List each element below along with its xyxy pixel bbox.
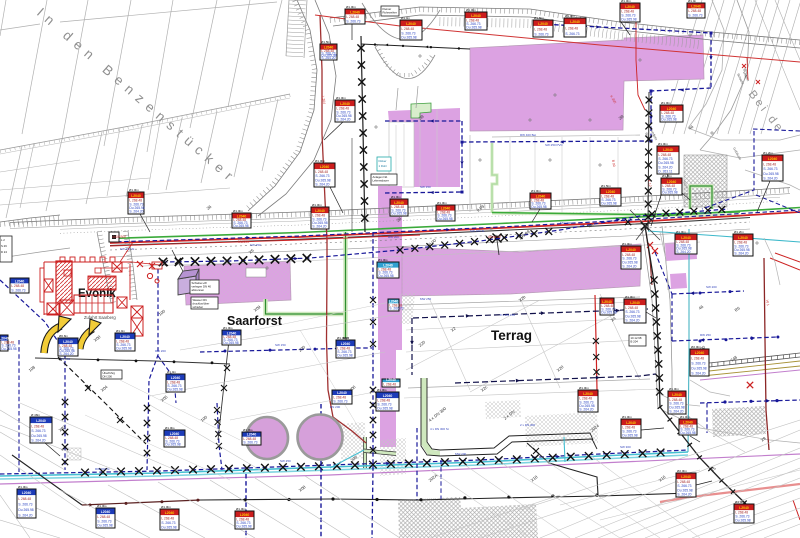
svg-text:S. 264.20: S. 264.20 [315,183,329,187]
svg-text:MW 250: MW 250 [420,297,432,301]
svg-text:Abzw 42: Abzw 42 [488,235,501,239]
svg-text:L2040: L2040 [538,22,548,26]
svg-text:Ø 48m: Ø 48m [31,413,41,417]
svg-text:S. 266.73: S. 266.73 [763,167,777,171]
svg-text:L 2: L 2 [1,238,5,242]
svg-text:SW 150: SW 150 [275,343,286,347]
svg-text:S. 264.20: S. 264.20 [59,352,73,356]
svg-text:Du 265.98: Du 265.98 [621,18,636,22]
svg-text:L2040: L2040 [341,342,351,346]
svg-text:SW 250 St: SW 250 St [120,247,135,251]
svg-text:Ø1.0bn: Ø1.0bn [466,8,476,12]
svg-text:Du 265.98: Du 265.98 [167,388,182,392]
svg-text:L2040: L2040 [663,148,673,152]
svg-text:Du 265.98: Du 265.98 [601,311,616,315]
svg-text:Du 265.98: Du 265.98 [337,354,352,358]
svg-text:Du 265.98: Du 265.98 [223,341,238,345]
svg-text:Ø1.0m: Ø1.0m [167,370,177,374]
svg-text:B 204: B 204 [631,340,639,344]
svg-text:Ø1.0m: Ø1.0m [401,16,411,20]
svg-text:L2040: L2040 [626,248,636,252]
svg-text:Du 265.98: Du 265.98 [763,172,778,176]
svg-text:L2040: L2040 [337,391,347,395]
svg-text:L2040: L2040 [406,22,416,26]
svg-text:Lebensdauer: Lebensdauer [373,179,389,183]
svg-text:SW 250: SW 250 [700,211,711,215]
svg-text:L2040: L2040 [320,165,330,169]
svg-text:S. 266.73: S. 266.73 [691,362,705,366]
svg-text:L2040: L2040 [315,209,325,213]
svg-text:Saarforst: Saarforst [227,314,283,328]
svg-text:DN 150: DN 150 [60,357,71,361]
svg-text:SW 300: SW 300 [620,445,631,449]
svg-text:Du 265.98: Du 265.98 [531,205,546,209]
svg-text:Du 265.98: Du 265.98 [691,367,706,371]
svg-text:Ø1.0bn: Ø1.0bn [129,188,139,192]
svg-text:S. 264.20: S. 264.20 [763,177,777,181]
svg-text:Du 265.98: Du 265.98 [377,407,392,411]
svg-text:S. 264.20: S. 264.20 [579,408,593,412]
svg-text:Du 265.98: Du 265.98 [161,526,176,530]
svg-text:L 268.48: L 268.48 [691,357,704,361]
svg-text:Ø1.0bs: Ø1.0bs [223,326,233,330]
svg-text:Du 265.98: Du 265.98 [236,525,251,529]
svg-text:2 x DN 300: 2 x DN 300 [520,423,535,427]
svg-text:Ø1.0bs: Ø1.0bs [165,426,175,430]
svg-text:schieber: schieber [193,305,204,309]
svg-text:L2040: L2040 [570,20,580,24]
svg-text:4xDN300: 4xDN300 [112,235,126,239]
svg-text:S. 266.73: S. 266.73 [565,32,579,36]
svg-text:S. 266.73: S. 266.73 [688,14,702,18]
svg-text:S. 266.73: S. 266.73 [161,521,175,525]
svg-text:L 268.48: L 268.48 [18,497,31,501]
svg-text:Ø2.0bn: Ø2.0bn [677,469,687,473]
svg-text:S. 266.73: S. 266.73 [243,441,257,445]
svg-text:Zufahrt Saarberg: Zufahrt Saarberg [84,315,116,320]
svg-text:S. 266.73: S. 266.73 [18,502,32,506]
svg-text:SW 250 St: SW 250 St [470,229,485,233]
svg-text:Ø1.0bn: Ø1.0bn [735,500,745,504]
svg-text:L 268.48: L 268.48 [565,26,578,30]
svg-text:Ø1.2bn: Ø1.2bn [763,151,773,155]
svg-text:Terrag: Terrag [491,328,532,343]
svg-text:L2040: L2040 [583,392,593,396]
svg-text:L 268.48: L 268.48 [383,383,396,387]
svg-text:Ø1.0bn: Ø1.0bn [312,203,322,207]
svg-text:Du 265.98: Du 265.98 [401,36,416,40]
svg-text:S. 266.73: S. 266.73 [333,400,347,404]
svg-text:RW 400 Bet: RW 400 Bet [520,133,536,137]
svg-text:L2040: L2040 [738,236,748,240]
svg-text:L2040: L2040 [471,14,481,18]
svg-text:L2040: L2040 [383,394,393,398]
svg-text:L2040: L2040 [626,421,636,425]
svg-text:SW 250: SW 250 [250,243,261,247]
svg-text:L2040: L2040 [630,301,640,305]
svg-text:Ø1.0bn: Ø1.0bn [315,159,325,163]
svg-text:Ø1.0bn: Ø1.0bn [621,0,631,3]
svg-text:Ø1.0bs: Ø1.0bs [243,428,253,432]
svg-text:L2040: L2040 [739,506,749,510]
svg-text:Ø1.0bn: Ø1.0bn [662,174,672,178]
svg-text:abtrennen: abtrennen [192,288,205,292]
svg-text:Du 265.98: Du 265.98 [601,202,616,206]
svg-text:Du 265.98: Du 265.98 [466,26,481,30]
svg-text:Ø1.5bn: Ø1.5bn [601,184,611,188]
svg-text:S. 266.73: S. 266.73 [534,32,548,36]
svg-text:Ø1.0bn: Ø1.0bn [622,415,632,419]
svg-text:L2040: L2040 [691,4,701,8]
svg-text:Ø1.0bn: Ø1.0bn [236,507,246,511]
svg-text:Ø1.0bn: Ø1.0bn [336,96,346,100]
svg-text:L2040: L2040 [120,335,130,339]
svg-text:RW 200: RW 200 [155,349,166,353]
svg-text:Ø1.0bs: Ø1.0bs [378,258,388,262]
svg-text:Ø1.0bn: Ø1.0bn [658,142,668,146]
svg-text:Du 265.98: Du 265.98 [378,274,393,278]
svg-text:S. 264.20: S. 264.20 [622,265,636,269]
svg-text:S. 264.20: S. 264.20 [336,118,350,122]
svg-text:Ø1.2bn: Ø1.2bn [734,230,744,234]
svg-text:8 x DN 150: 8 x DN 150 [500,313,515,317]
svg-text:S. 264.20: S. 264.20 [669,410,683,414]
svg-text:S. 264.20: S. 264.20 [691,371,705,375]
svg-text:L2040: L2040 [240,513,250,517]
svg-text:L2040: L2040 [131,194,141,198]
svg-text:D 24: D 24 [1,250,7,254]
svg-text:Ø1.0bn: Ø1.0bn [161,505,171,509]
svg-text:RW 250: RW 250 [700,333,711,337]
svg-text:S. 264.20: S. 264.20 [321,56,335,60]
svg-text:MW 200: MW 200 [455,452,467,456]
svg-text:S. 266.73: S. 266.73 [31,429,45,433]
svg-text:Du 265.98: Du 265.98 [165,443,180,447]
svg-text:Du 265.98: Du 265.98 [680,431,695,435]
svg-text:Ø1.0bs: Ø1.0bs [97,504,107,508]
svg-text:L2040: L2040 [171,376,181,380]
svg-text:Ø1.0bs: Ø1.0bs [18,485,28,489]
svg-text:L2040: L2040 [350,10,360,14]
svg-text:1 Rohr: 1 Rohr [379,164,387,168]
svg-text:L2040: L2040 [15,279,25,283]
svg-text:Ø1.0bn: Ø1.0bn [622,242,632,246]
svg-text:Ø1.0bn: Ø1.0bn [565,14,575,18]
svg-text:Du 265.98: Du 265.98 [391,212,406,216]
svg-text:Ø1.0bs: Ø1.0bs [377,388,387,392]
svg-text:L2040: L2040 [101,510,111,514]
svg-text:MW 400: MW 400 [560,221,572,225]
svg-text:DN 200: DN 200 [330,405,341,409]
svg-text:L 268.48: L 268.48 [534,27,547,31]
svg-text:Ø1.0bs: Ø1.0bs [337,336,347,340]
svg-text:Ø1.0bn: Ø1.0bn [437,201,447,205]
svg-text:S 26: S 26 [1,244,7,248]
svg-text:SW 200: SW 200 [706,285,717,289]
svg-text:Du 265.98: Du 265.98 [1,347,16,351]
svg-text:S. 264.20: S. 264.20 [676,250,690,254]
svg-text:RW 300 St: RW 300 St [95,467,110,471]
svg-text:L2040: L2040 [165,511,175,515]
svg-text:Du 265.98: Du 265.98 [18,508,33,512]
svg-text:L2040: L2040 [22,491,32,495]
svg-text:S. 264.20: S. 264.20 [129,210,143,214]
svg-text:Du 265.98: Du 265.98 [233,224,248,228]
svg-text:S. 266.73: S. 266.73 [346,20,360,24]
svg-text:SW 150: SW 150 [420,185,431,189]
svg-text:Ø1.0m: Ø1.0m [116,329,126,333]
svg-text:SW 250: SW 250 [280,459,291,463]
svg-text:Ø1.0bn: Ø1.0bn [661,101,671,105]
svg-text:Du 265.98: Du 265.98 [662,191,677,195]
svg-text:L2040: L2040 [672,393,682,397]
svg-text:Ø1.0bn: Ø1.0bn [625,295,635,299]
svg-text:L2040: L2040 [695,351,705,355]
svg-text:Ø1.0bn: Ø1.0bn [233,209,243,213]
svg-text:Ø2.0bn: Ø2.0bn [691,345,701,349]
svg-text:S. 264.20: S. 264.20 [31,439,45,443]
svg-text:Rohrweiher: Rohrweiher [383,11,397,15]
svg-text:L2040: L2040 [386,378,396,382]
svg-text:RW 300: RW 300 [388,235,399,239]
svg-text:DN 200: DN 200 [103,375,113,379]
svg-text:S. 264.20: S. 264.20 [625,319,639,323]
svg-text:L2040: L2040 [340,102,350,106]
svg-text:S. 264.20: S. 264.20 [734,252,748,256]
svg-text:L2040: L2040 [625,5,635,9]
svg-text:L 268.48: L 268.48 [161,516,174,520]
svg-text:L2040: L2040 [36,419,46,423]
svg-text:Ø1.0bn: Ø1.0bn [346,5,356,9]
svg-text:Du 265.98: Du 265.98 [735,519,750,523]
svg-text:S. 266.73: S. 266.73 [11,289,25,293]
svg-text:Düker: Düker [379,159,387,163]
svg-text:Du 265.98: Du 265.98 [31,434,46,438]
svg-text:Du 265.98: Du 265.98 [622,434,637,438]
svg-text:Du 265.98: Du 265.98 [116,347,131,351]
svg-text:S. 264.20: S. 264.20 [312,225,326,229]
svg-text:L2040: L2040 [681,475,691,479]
svg-text:Ø1.0bn: Ø1.0bn [531,189,541,193]
svg-text:S. 264.20: S. 264.20 [18,513,32,517]
svg-text:S. 264.20: S. 264.20 [677,493,691,497]
svg-text:SW 250 PVC: SW 250 PVC [545,143,564,147]
svg-text:S. 266.73: S. 266.73 [389,307,403,311]
svg-text:Ø1.0bn: Ø1.0bn [669,387,679,391]
svg-text:L 268.48: L 268.48 [763,162,776,166]
svg-text:Du 265.98: Du 265.98 [661,118,676,122]
svg-text:L 268.48: L 268.48 [31,424,44,428]
svg-text:Ø1.5bn: Ø1.5bn [321,40,331,44]
svg-text:Ø1.0n: Ø1.0n [688,0,697,3]
svg-text:Ø0.8m: Ø0.8m [59,334,69,338]
svg-text:L2040: L2040 [768,157,778,161]
svg-text:4 x DN 300 St: 4 x DN 300 St [430,427,449,431]
svg-text:Ø1.0bn: Ø1.0bn [676,230,686,234]
svg-text:L2040: L2040 [247,433,257,437]
svg-text:Ø1.0bn: Ø1.0bn [680,415,690,419]
svg-text:Ø1.0bn: Ø1.0bn [579,386,589,390]
svg-text:NW200: NW200 [238,240,249,244]
svg-text:Ø1.0bn: Ø1.0bn [391,195,401,199]
svg-text:Du 265.98: Du 265.98 [437,217,452,221]
svg-text:L2040: L2040 [606,190,616,194]
svg-text:Du 265.98: Du 265.98 [97,524,112,528]
svg-text:Ø1.5bn: Ø1.5bn [534,16,544,20]
